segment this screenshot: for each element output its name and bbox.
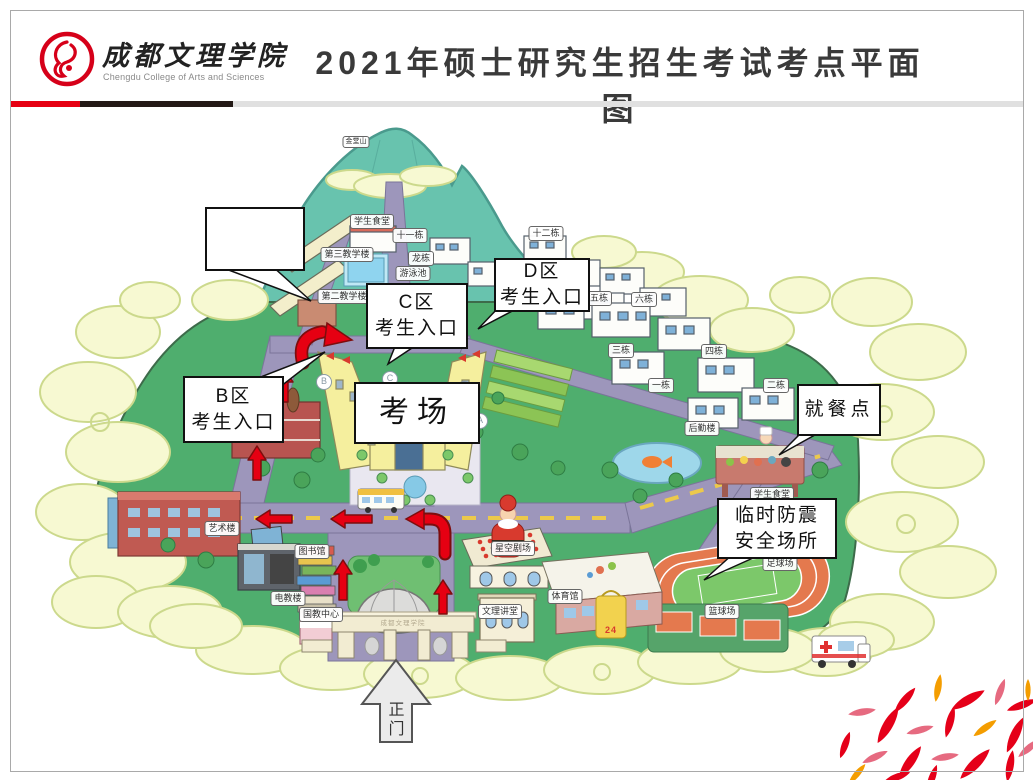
poster: 成都文理学院 Chengdu College of Arts and Scien… bbox=[0, 0, 1033, 780]
label-intl-center: 国教中心 bbox=[299, 607, 343, 622]
college-seal-icon bbox=[38, 30, 96, 88]
label-teach-3: 第三教学楼 bbox=[320, 247, 373, 262]
d-entrance-line1: D区 bbox=[524, 259, 561, 285]
quake-shelter-line1: 临时防震 bbox=[735, 503, 819, 529]
label-lecture-hall: 文理讲堂 bbox=[478, 604, 522, 619]
label-etech: 电教楼 bbox=[270, 591, 305, 606]
callout-b-entrance: B区 考生入口 bbox=[183, 376, 284, 443]
label-art-building: 艺术楼 bbox=[204, 521, 239, 536]
dining-point-text: 就餐点 bbox=[804, 397, 873, 423]
label-bldg-2: 二栋 bbox=[763, 378, 789, 393]
callout-quake-shelter: 临时防震 安全场所 bbox=[717, 498, 837, 559]
b-entrance-line2: 考生入口 bbox=[191, 410, 275, 436]
main-gate-line1: 正 bbox=[380, 701, 413, 720]
exam-hall-text: 考场 bbox=[379, 393, 455, 434]
label-jintang-hill: 金堂山 bbox=[343, 136, 370, 148]
label-bldg-long: 龙栋 bbox=[408, 251, 434, 266]
bag-24-text: 24 bbox=[602, 624, 620, 637]
callout-dining-point: 就餐点 bbox=[797, 384, 881, 436]
label-bldg-1: 一栋 bbox=[648, 378, 674, 393]
college-name-cn: 成都文理学院 bbox=[102, 34, 288, 73]
d-entrance-line2: 考生入口 bbox=[500, 285, 584, 311]
page-title: 2021年硕士研究生招生考试考点平面图 bbox=[300, 38, 940, 130]
c-entrance-line1: C区 bbox=[399, 290, 436, 316]
wing-badge-b: B bbox=[316, 374, 332, 390]
quake-shelter-line2: 安全场所 bbox=[735, 529, 819, 555]
callout-d-entrance: D区 考生入口 bbox=[494, 258, 590, 312]
callout-c-entrance: C区 考生入口 bbox=[366, 283, 468, 349]
b-entrance-line1: B区 bbox=[216, 384, 252, 410]
label-star-theater: 星空剧场 bbox=[491, 541, 535, 556]
fountain bbox=[404, 476, 426, 498]
main-gate-label: 正 门 bbox=[380, 701, 413, 739]
label-logistics: 后勤楼 bbox=[684, 421, 719, 436]
callout-exam-hall: 考场 bbox=[354, 382, 480, 444]
main-gate-line2: 门 bbox=[380, 720, 413, 739]
label-teach-2: 第二教学楼 bbox=[317, 289, 370, 304]
divider-black-segment bbox=[80, 101, 233, 107]
label-bldg-6: 六栋 bbox=[631, 292, 657, 307]
college-name-en: Chengdu College of Arts and Sciences bbox=[103, 72, 264, 82]
divider-gray-segment bbox=[233, 101, 1024, 107]
gate-sign-text: 成都文理学院 bbox=[378, 617, 429, 630]
pond bbox=[613, 443, 701, 483]
callout-empty-note bbox=[205, 207, 305, 271]
bus-icon bbox=[358, 489, 404, 513]
label-pool: 游泳池 bbox=[395, 266, 430, 281]
label-basketball-court: 篮球场 bbox=[704, 604, 739, 619]
c-entrance-line2: 考生入口 bbox=[375, 316, 459, 342]
label-library: 图书馆 bbox=[294, 544, 329, 559]
label-bldg-11: 十一栋 bbox=[392, 228, 427, 243]
label-bldg-4: 四栋 bbox=[701, 344, 727, 359]
label-bldg-3: 三栋 bbox=[608, 343, 634, 358]
label-canteen-north: 学生食堂 bbox=[350, 214, 394, 229]
label-gym: 体育馆 bbox=[547, 589, 582, 604]
label-bldg-12: 十二栋 bbox=[528, 226, 563, 241]
petal-decorations bbox=[837, 674, 1033, 780]
divider-red-segment bbox=[10, 101, 80, 107]
